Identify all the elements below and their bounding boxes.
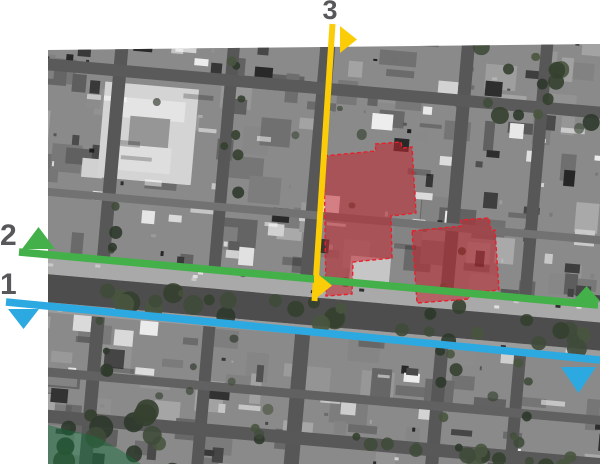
park-highlight-overlay [48, 425, 141, 464]
arrow-up-icon [22, 227, 55, 249]
section-line-1 [6, 302, 600, 360]
annotated-aerial-figure: 2 1 3 [0, 0, 600, 464]
highlighted-buildings-west [324, 142, 416, 296]
arrow-down-icon [561, 367, 596, 393]
annotation-overlay [0, 0, 600, 464]
section-label-2: 2 [0, 221, 17, 251]
section-label-3: 3 [316, 0, 344, 24]
section-line-2 [19, 252, 598, 305]
section-label-1: 1 [0, 270, 17, 300]
arrow-down-icon [8, 309, 39, 329]
arrow-up-icon [573, 286, 600, 301]
arrow-right-icon [340, 26, 357, 53]
